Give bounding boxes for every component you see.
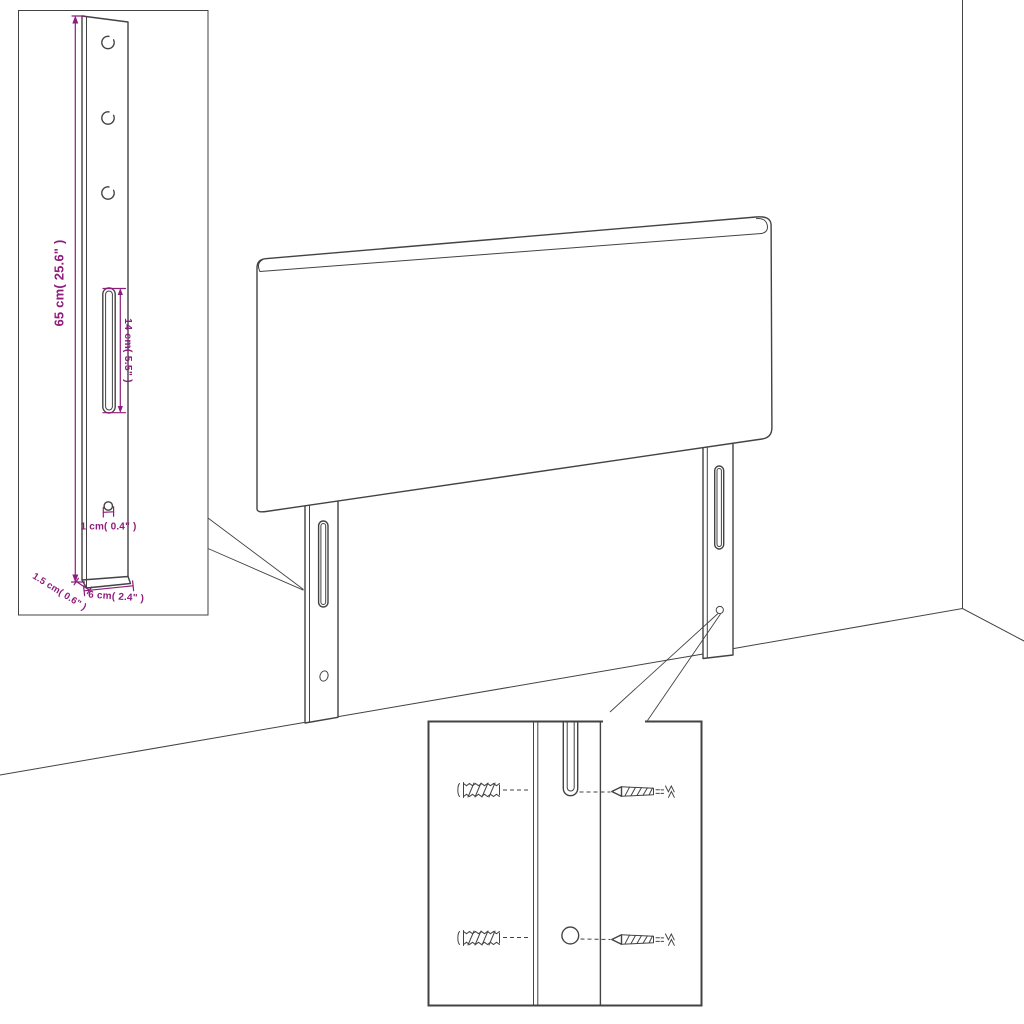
dimension-height: 65 cm( 25.6" )	[52, 16, 85, 583]
diagram-canvas: 65 cm( 25.6" ) 14 cm( 5.5" ) 1 cm( 0.4" …	[0, 0, 1024, 1024]
headboard-right-leg	[703, 434, 733, 659]
leg-closeup	[534, 722, 601, 1006]
bracket-drawing	[82, 16, 131, 588]
wall-plug-icon	[458, 931, 500, 946]
mounting-detail-inset	[429, 722, 702, 1006]
hole-label: 1 cm( 0.4" )	[80, 522, 136, 533]
depth-label: 6 cm( 2.4" )	[88, 590, 145, 605]
thickness-label: 1.5 cm( 0.6" )	[30, 571, 88, 613]
closeup-hole	[562, 927, 579, 944]
assembly-diagram: 65 cm( 25.6" ) 14 cm( 5.5" ) 1 cm( 0.4" …	[0, 0, 1024, 1024]
bracket-outline	[82, 16, 128, 580]
slot-label: 14 cm( 5.5" )	[122, 318, 134, 383]
bracket-slot-inner	[106, 291, 113, 410]
headboard-left-leg	[305, 490, 338, 723]
bracket-inset-callout-lines	[208, 518, 304, 590]
headboard-panel	[257, 217, 772, 512]
alignment-dashed-lines	[503, 790, 611, 940]
closeup-slot-inner	[567, 722, 574, 792]
dimension-depth: 6 cm( 2.4" )	[84, 581, 145, 605]
screw-icon	[612, 786, 675, 797]
wall-plug-icon	[458, 783, 500, 798]
closeup-slot	[563, 722, 577, 796]
bracket-small-hole	[104, 502, 112, 510]
bracket-hole-2	[102, 112, 114, 124]
bracket-detail-inset: 65 cm( 25.6" ) 14 cm( 5.5" ) 1 cm( 0.4" …	[19, 11, 209, 616]
dimension-slot: 14 cm( 5.5" )	[103, 288, 134, 413]
bracket-hole-1	[102, 36, 114, 48]
bracket-slot	[103, 288, 115, 413]
panel-outline	[257, 217, 772, 512]
height-label: 65 cm( 25.6" )	[52, 239, 67, 326]
floor-line	[0, 609, 1024, 776]
bracket-hole-3	[102, 187, 114, 199]
mounting-inset-border	[429, 722, 702, 1006]
screw-icon	[612, 934, 675, 945]
